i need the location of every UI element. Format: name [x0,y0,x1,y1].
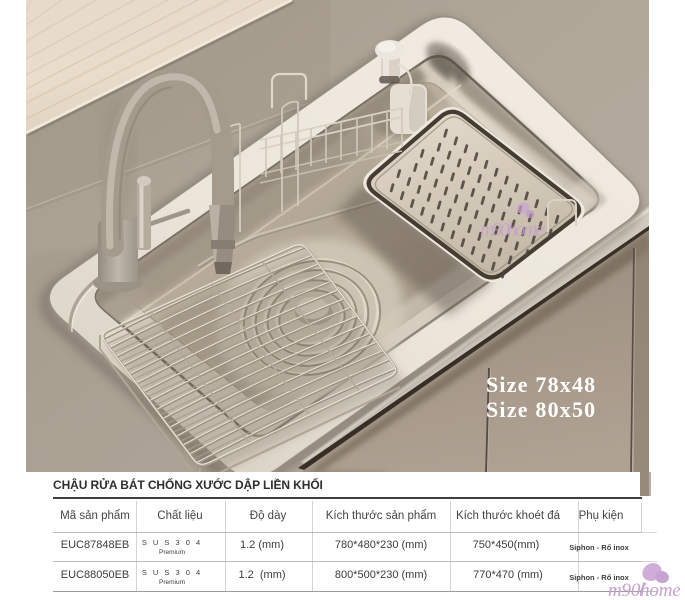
svg-text:Size 80x50: Size 80x50 [486,397,596,422]
svg-text:m90home: m90home [480,219,544,241]
svg-text:Size 78x48: Size 78x48 [486,372,596,397]
